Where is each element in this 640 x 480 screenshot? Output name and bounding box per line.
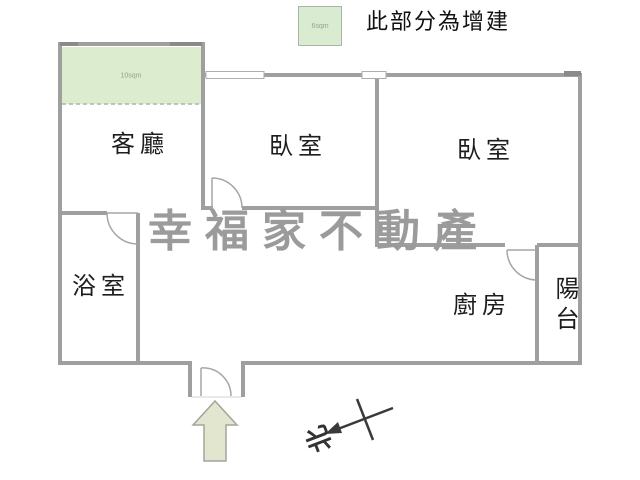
agency-watermark: 幸福家不動產	[148, 210, 490, 254]
door-arc-bathroom	[107, 213, 138, 244]
room-label-bedroom-right: 臥室	[457, 139, 515, 163]
room-label-balcony: 陽台	[552, 276, 576, 336]
legend-label: 此部分為增建	[366, 10, 510, 34]
window-bedroom1	[206, 72, 264, 79]
room-label-kitchen: 廚房	[453, 294, 511, 318]
floorplan-page: 6sqm 此部分為增建 10sqm 客廳 臥室 臥室 浴室 廚房 陽台 幸福家不…	[0, 0, 640, 480]
door-arc-bedroom2	[507, 250, 537, 280]
wall-cap	[60, 42, 78, 46]
door-arc-bedroom1	[212, 178, 242, 208]
addition-area-text: 10sqm	[120, 73, 141, 80]
wall-cap	[564, 71, 581, 76]
entrance-arrow-icon	[193, 401, 237, 461]
door-arc-entrance	[201, 368, 231, 396]
legend-addition-swatch: 6sqm	[298, 6, 342, 46]
window-bedroom2-left	[362, 72, 386, 79]
wall-cap	[170, 42, 202, 46]
north-compass-icon	[325, 399, 393, 440]
room-label-living: 客廳	[111, 133, 169, 157]
room-label-bedroom-left: 臥室	[269, 135, 327, 159]
room-label-bathroom: 浴室	[72, 275, 130, 299]
legend-swatch-area-text: 6sqm	[311, 23, 328, 30]
